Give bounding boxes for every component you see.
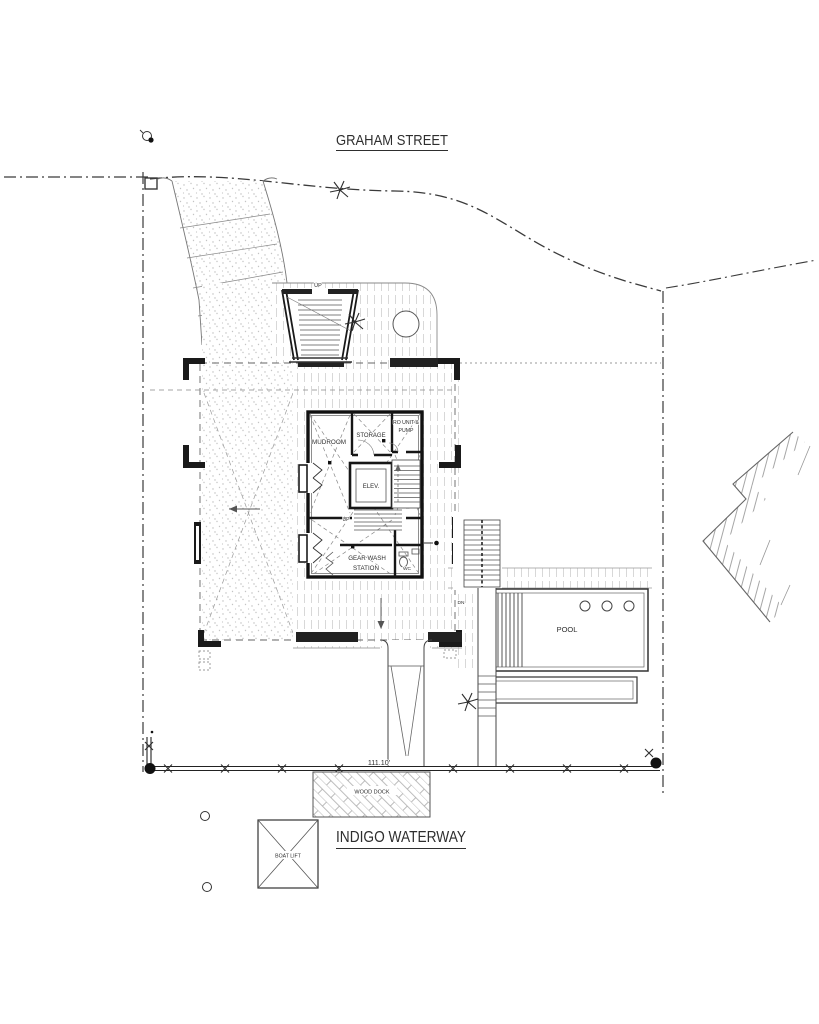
street-title: GRAHAM STREET: [336, 132, 448, 149]
label-boat-lift: BOAT LIFT: [275, 854, 302, 860]
tree-circle: [393, 311, 419, 337]
waterway-title: INDIGO WATERWAY: [336, 829, 466, 846]
entry-stair: UP: [282, 283, 358, 362]
building: MUDROOM STORAGE RO UNIT & PUMP ELEV. UP …: [299, 412, 439, 577]
label-gear-wash-line1: GEAR WASH: [348, 555, 386, 562]
label-wood-dock: WOOD DOCK: [354, 790, 389, 796]
property-pin-left: [145, 763, 156, 774]
label-ro-unit-line2: PUMP: [399, 428, 415, 434]
site-plan-drawing: UP: [0, 0, 819, 1024]
mooring-pile: [201, 812, 210, 821]
palm-icon: [458, 693, 478, 711]
property-pin-right: [651, 758, 662, 769]
label-gear-wash-line2: STATION: [353, 565, 379, 572]
neighbor-hatch: [703, 432, 810, 622]
label-mudroom: MUDROOM: [312, 440, 346, 446]
mooring-pile: [203, 883, 212, 892]
label-exterior-stair-dn: DN: [458, 600, 465, 606]
center-walkway: [380, 640, 432, 766]
entry-stair-up-label: UP: [314, 283, 322, 289]
palm-icon: [330, 181, 350, 199]
label-ro-unit-line1: RO UNIT &: [393, 420, 420, 426]
pool-area: POOL: [489, 589, 648, 703]
seawall-dimension: 111.10': [368, 758, 391, 767]
label-up-interior: UP: [343, 517, 351, 523]
label-wc: WC: [403, 566, 412, 572]
site-plan-page: UP: [0, 0, 819, 1024]
east-walkway: [478, 588, 496, 766]
flower-icon: [140, 130, 154, 143]
label-storage: STORAGE: [356, 433, 385, 439]
label-elevator: ELEV.: [363, 484, 380, 490]
label-pool: POOL: [557, 625, 578, 634]
